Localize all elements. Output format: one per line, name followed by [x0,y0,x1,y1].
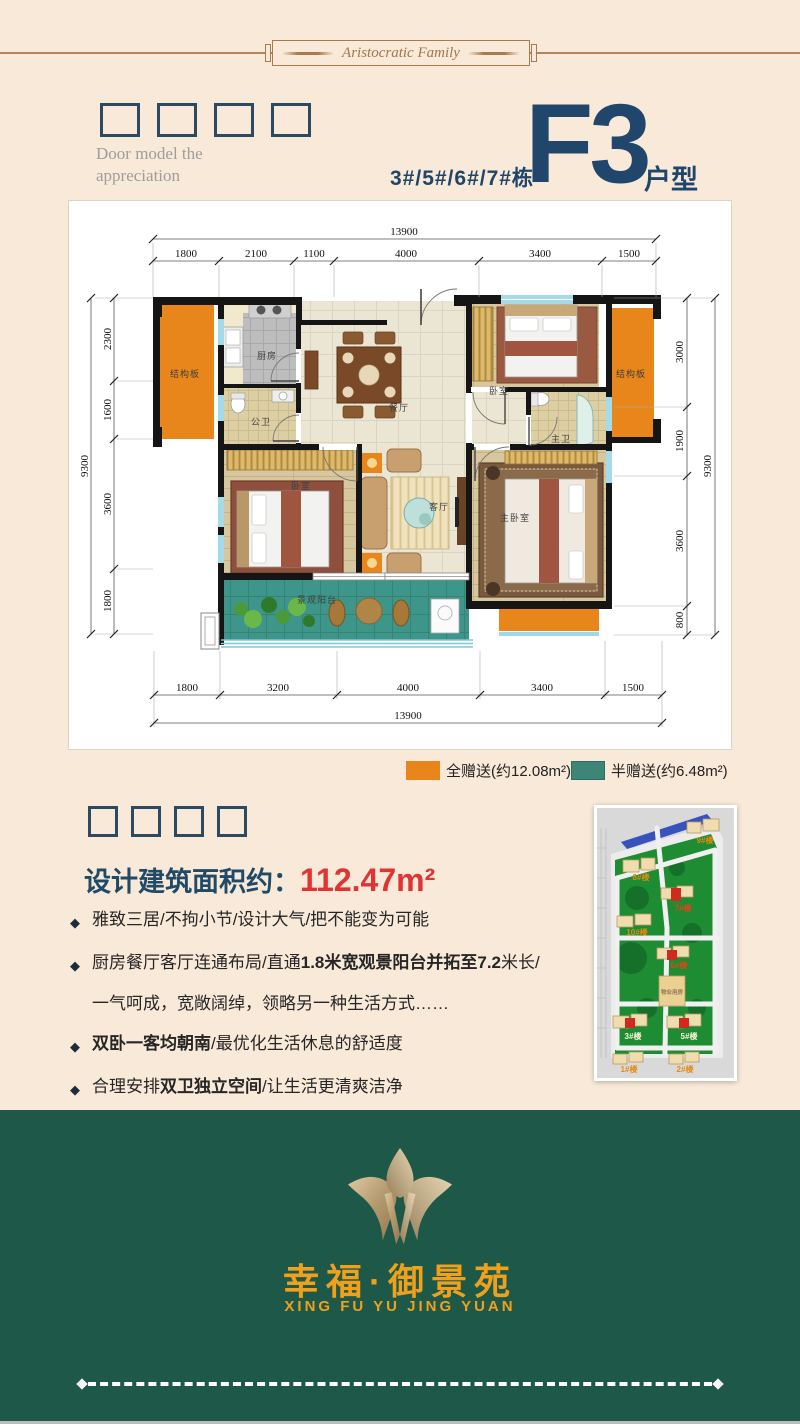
svg-text:1600: 1600 [102,399,114,422]
building-numbers: 3#/5#/6#/7#栋 [390,162,534,192]
svg-text:800: 800 [674,611,686,628]
legend-half-gift-label: 半赠送(约6.48m²) [611,760,728,781]
room-label-structural-left: 结构板 [170,368,200,379]
svg-text:2#楼: 2#楼 [677,1064,694,1074]
svg-text:1900: 1900 [674,430,686,453]
legend-full-gift-swatch [406,761,440,780]
unit-model-label: 户型 [644,158,698,197]
decor-square [88,806,118,837]
site-plan-map: 9#楼 8#楼 7#楼 10#楼 6#楼 物业用房 3#楼 5#楼 1#楼 2#… [594,805,737,1081]
details-decor-squares [88,806,247,837]
dim-top-total: 13900 [390,226,418,238]
built-area-line: 设计建筑面积约：112.47m² [84,860,435,899]
floorplan-panel: 结构板 厨房 公卫 卧室 餐厅 客厅 卧室 主卫 主卧室 结构板 景观阳台 [68,200,732,750]
built-area-label: 设计建筑面积约： [84,867,300,897]
room-label-balcony: 景观阳台 [297,594,337,605]
svg-text:1100: 1100 [303,248,325,260]
brand-pinyin: XING FU YU JING YUAN [0,1298,800,1315]
room-label-bath-public: 公卫 [251,417,271,427]
svg-text:3400: 3400 [529,248,552,260]
header-caption-line1: Door model the [96,143,203,165]
svg-text:1#楼: 1#楼 [621,1064,638,1074]
svg-text:1800: 1800 [175,248,198,260]
site-plan-drawing: 9#楼 8#楼 7#楼 10#楼 6#楼 物业用房 3#楼 5#楼 1#楼 2#… [597,808,734,1078]
decor-square [100,103,140,137]
diamond-bullet-icon: ◆ [70,1075,92,1101]
diamond-bullet-icon: ◆ [70,908,92,934]
dashed-divider [88,1382,712,1386]
title-decor-squares [100,103,311,137]
svg-text:3400: 3400 [531,682,554,694]
svg-text:3600: 3600 [674,530,686,553]
legend-half-gift-swatch [571,761,605,780]
svg-text:10#楼: 10#楼 [626,927,647,937]
svg-text:8#楼: 8#楼 [633,872,650,882]
svg-text:4000: 4000 [397,682,420,694]
diamond-end-icon [76,1378,87,1389]
svg-text:1800: 1800 [102,590,114,613]
room-label-living: 客厅 [429,501,449,512]
svg-text:9#楼: 9#楼 [697,835,714,845]
svg-text:3000: 3000 [674,341,686,364]
svg-text:2300: 2300 [102,328,114,351]
room-label-bath-master: 主卫 [551,433,571,444]
svg-text:6#楼: 6#楼 [671,960,688,970]
ornament-dash-left [282,52,334,55]
brand-logo-icon [342,1146,458,1250]
svg-text:3#楼: 3#楼 [625,1031,642,1041]
feature-list: ◆ 雅致三居/不拘小节/设计大气/把不能变为可能 ◆ 厨房餐厅客厅连通布局/直通… [70,908,590,1118]
footer: 幸福·御景苑 XING FU YU JING YUAN [0,1110,800,1424]
svg-text:1500: 1500 [622,682,645,694]
legend-half-gift: 半赠送(约6.48m²) [571,760,728,781]
svg-text:3600: 3600 [102,493,114,516]
decor-square [214,103,254,137]
header-caption: Door model the appreciation [96,143,203,187]
feature-item: ◆ 厨房餐厅客厅连通布局/直通1.8米宽观景阳台并拓至7.2米长/ [70,951,590,977]
ornament-dash-right [468,52,520,55]
room-label-master-bedroom: 主卧室 [500,512,530,523]
svg-text:1500: 1500 [618,248,641,260]
decor-square [174,806,204,837]
dim-bottom-total: 13900 [394,710,422,722]
dim-left-total: 9300 [79,455,91,478]
svg-text:3200: 3200 [267,682,290,694]
floorplan-drawing: 结构板 厨房 公卫 卧室 餐厅 客厅 卧室 主卫 主卧室 结构板 景观阳台 [69,201,731,749]
bullet-spacer [70,992,92,995]
svg-text:5#楼: 5#楼 [681,1031,698,1041]
svg-text:1800: 1800 [176,682,199,694]
room-label-bedroom-left: 卧室 [291,480,311,491]
room-label-kitchen: 厨房 [257,350,277,361]
feature-item: ◆ 合理安排双卫独立空间/让生活更清爽洁净 [70,1075,590,1101]
svg-text:7#楼: 7#楼 [675,903,692,913]
decor-square [271,103,311,137]
room-label-bedroom-right: 卧室 [489,385,509,396]
legend-full-gift: 全赠送(约12.08m²) [406,760,571,781]
room-label-structural-right: 结构板 [616,368,646,379]
poster-page: { "ornament": { "banner": "Aristocratic … [0,0,800,1424]
header-caption-line2: appreciation [96,165,203,187]
feature-item: ◆ 雅致三居/不拘小节/设计大气/把不能变为可能 [70,908,590,934]
legend-full-gift-label: 全赠送(约12.08m²) [446,760,571,781]
diamond-bullet-icon: ◆ [70,951,92,977]
room-label-dining: 餐厅 [389,402,409,413]
diamond-bullet-icon: ◆ [70,1032,92,1058]
decor-square [217,806,247,837]
svg-text:2100: 2100 [245,248,268,260]
ornament-banner: Aristocratic Family [272,40,530,66]
svg-text:4000: 4000 [395,248,418,260]
feature-item-continuation: 一气呵成，宽敞阔绰，领略另一种生活方式…… [70,992,590,1015]
dim-right-total: 9300 [702,455,714,478]
built-area-value: 112.47m² [300,862,435,898]
decor-square [157,103,197,137]
decor-square [131,806,161,837]
ornament-banner-text: Aristocratic Family [342,45,460,62]
diamond-end-icon [712,1378,723,1389]
unit-model-code: F3 [525,88,648,200]
svg-text:物业用房: 物业用房 [661,988,684,996]
feature-item: ◆ 双卧一客均朝南/最优化生活休息的舒适度 [70,1032,590,1058]
